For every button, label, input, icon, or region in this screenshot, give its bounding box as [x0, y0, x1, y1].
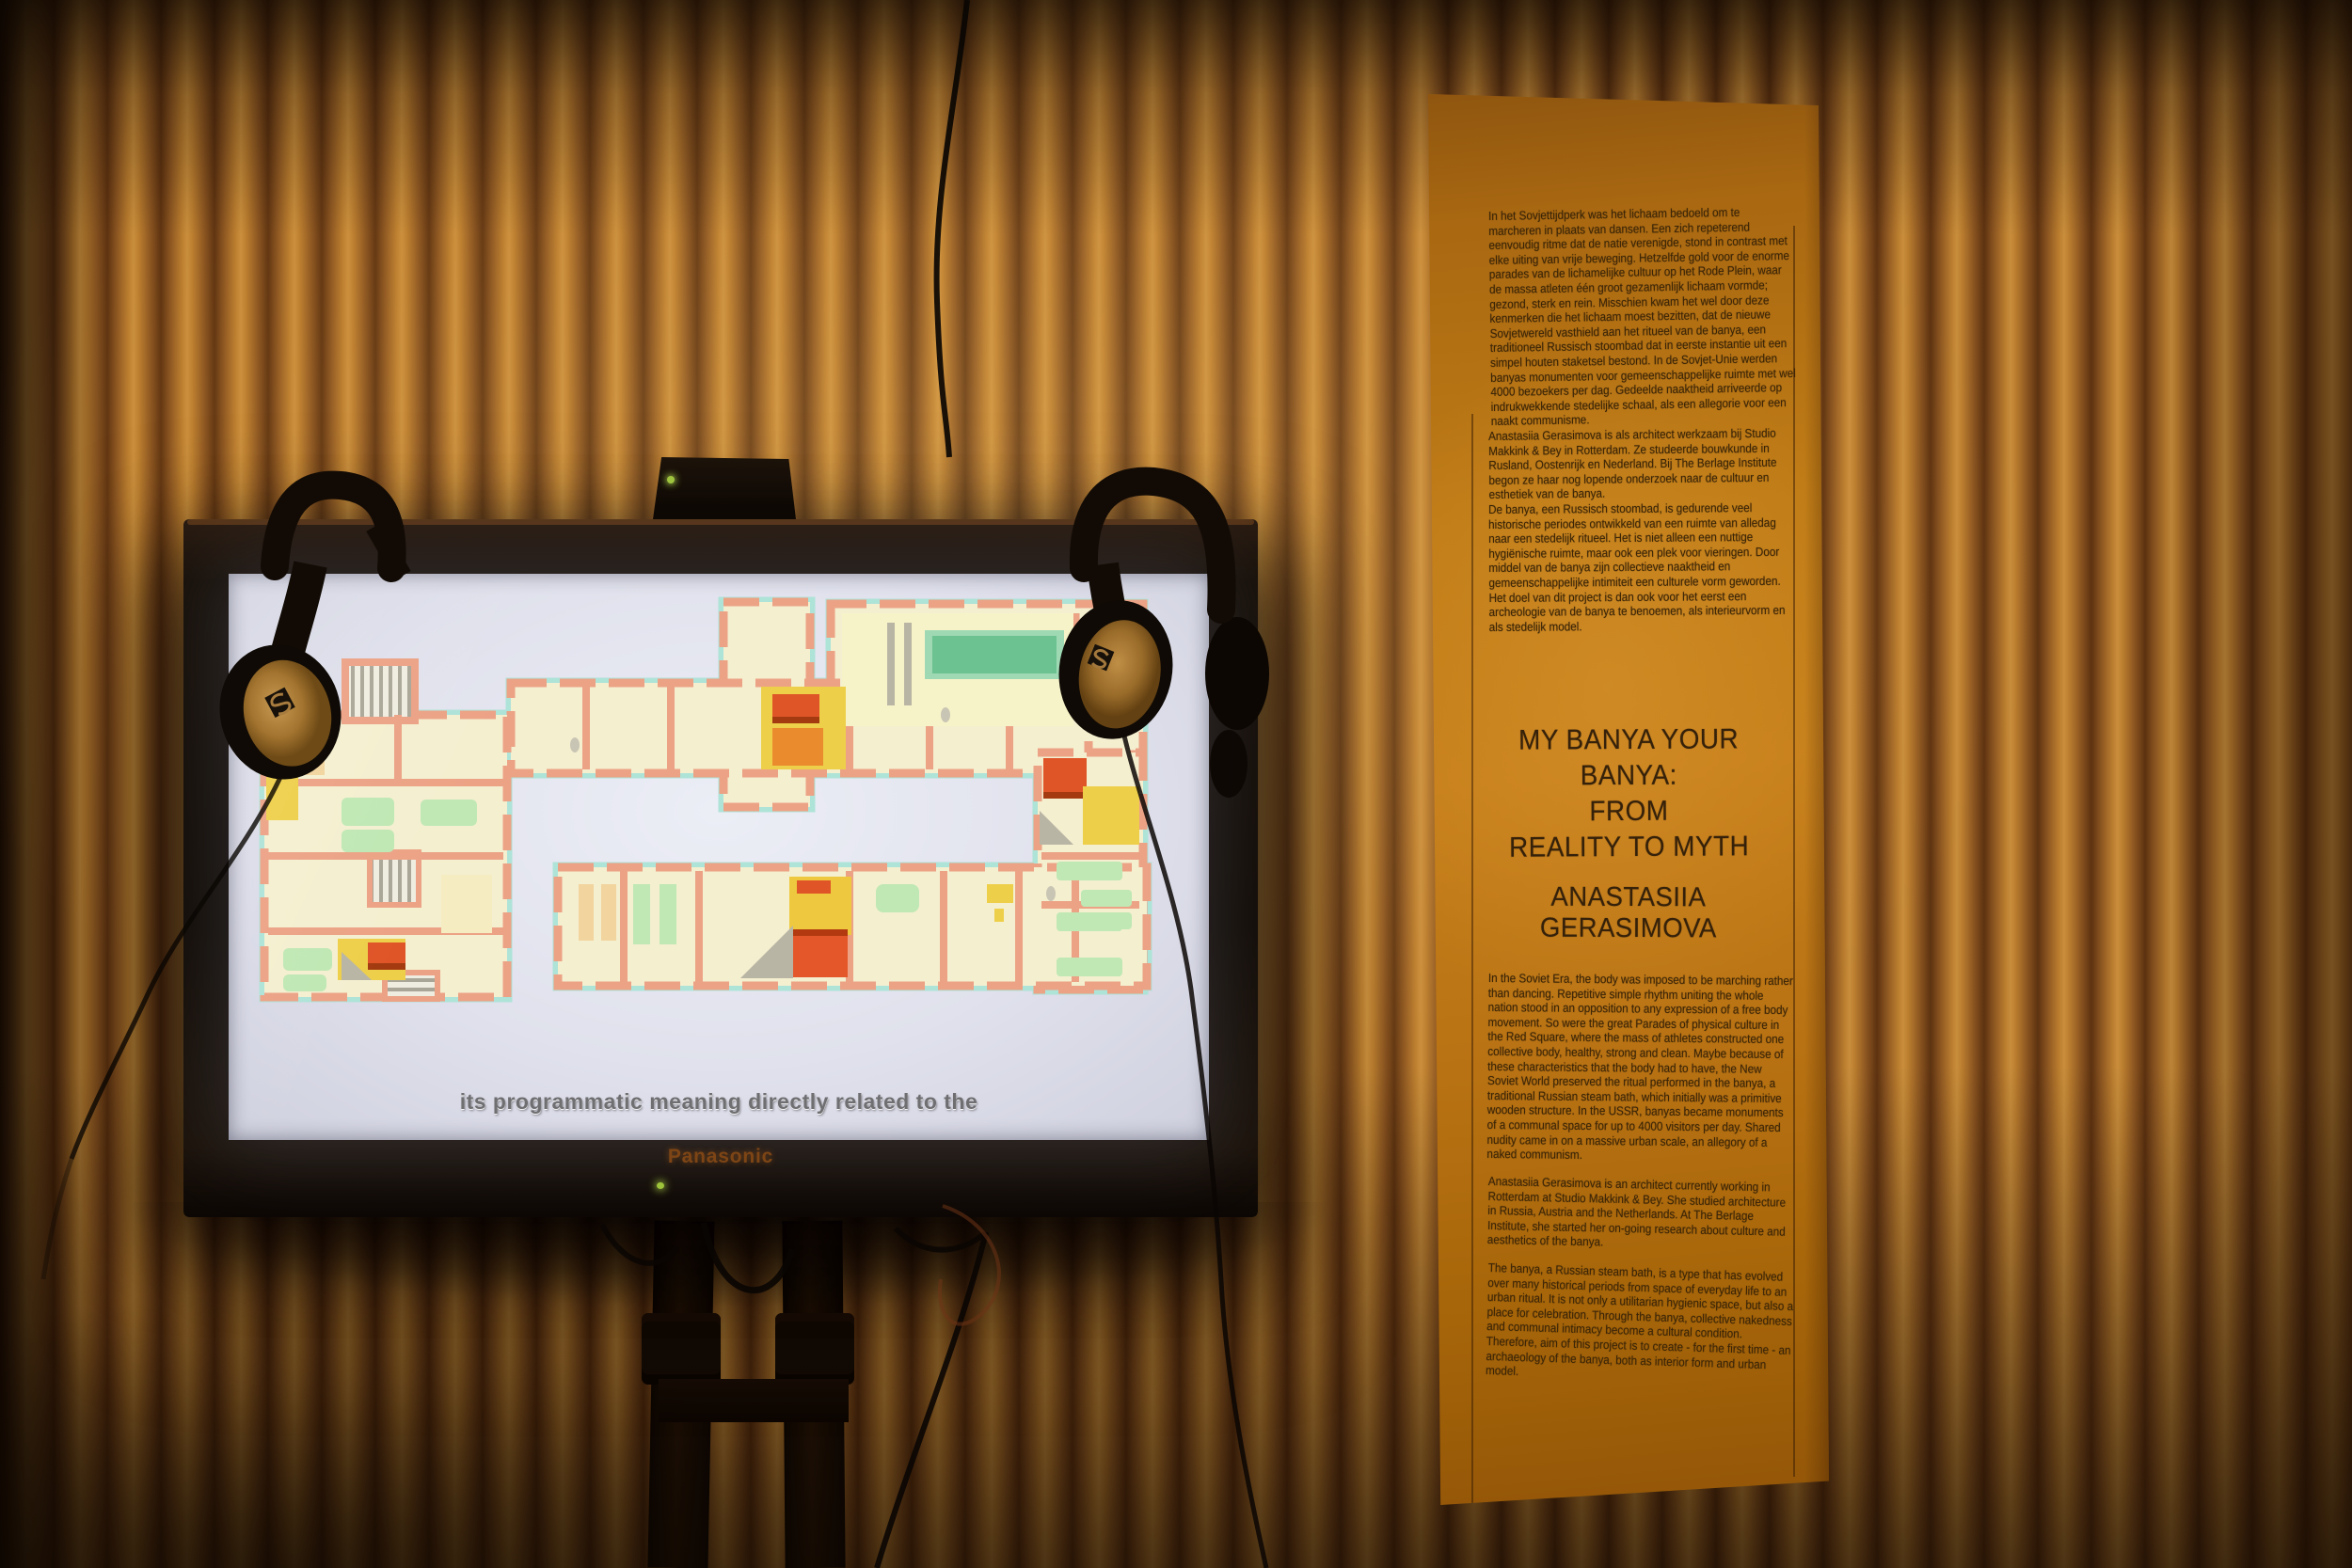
- banya-floorplan: [264, 602, 1147, 999]
- poster-title-line: FROM: [1467, 793, 1790, 831]
- poster-crease-left: [1471, 414, 1473, 1533]
- poster-dutch-paragraph: Anastasiia Gerasimova is als architect w…: [1488, 426, 1795, 502]
- exhibition-poster: In het Sovjettijdperk was het lichaam be…: [1428, 94, 1829, 1505]
- poster-dutch-paragraph: De banya, een Russisch stoombad, is gedu…: [1488, 500, 1796, 635]
- poster-author: ANASTASIIA GERASIMOVA: [1463, 881, 1794, 944]
- tv-display: its programmatic meaning directly relate…: [183, 519, 1258, 1217]
- exhibition-photo: its programmatic meaning directly relate…: [0, 0, 2352, 1568]
- floorplan-video-frame: [229, 574, 1209, 1140]
- tv-power-led-icon: [657, 1182, 664, 1189]
- poster-english-paragraph: The banya, a Russian steam bath, is a ty…: [1486, 1260, 1795, 1387]
- stand-crossbar: [659, 1379, 849, 1422]
- poster-english-paragraph: Anastasiia Gerasimova is an architect cu…: [1487, 1174, 1795, 1254]
- poster-title-line: REALITY TO MYTH: [1468, 829, 1791, 866]
- poster-dutch-paragraph: In het Sovjettijdperk was het lichaam be…: [1488, 204, 1798, 429]
- stand-clamp-right: [775, 1313, 854, 1385]
- media-box-status-led-icon: [667, 476, 675, 483]
- poster-title-line: MY BANYA YOUR BANYA:: [1467, 721, 1790, 795]
- tv-brand-logo: Panasonic: [183, 1146, 1258, 1168]
- video-subtitle: its programmatic meaning directly relate…: [229, 1089, 1209, 1115]
- poster-title: MY BANYA YOUR BANYA: FROM REALITY TO MYT…: [1467, 721, 1791, 866]
- media-player-box: [653, 457, 796, 519]
- tv-cast-shadow: [132, 1202, 1327, 1306]
- tv-screen: its programmatic meaning directly relate…: [229, 574, 1209, 1140]
- poster-english-paragraph: In the Soviet Era, the body was imposed …: [1486, 971, 1794, 1164]
- stand-clamp-left: [642, 1313, 721, 1385]
